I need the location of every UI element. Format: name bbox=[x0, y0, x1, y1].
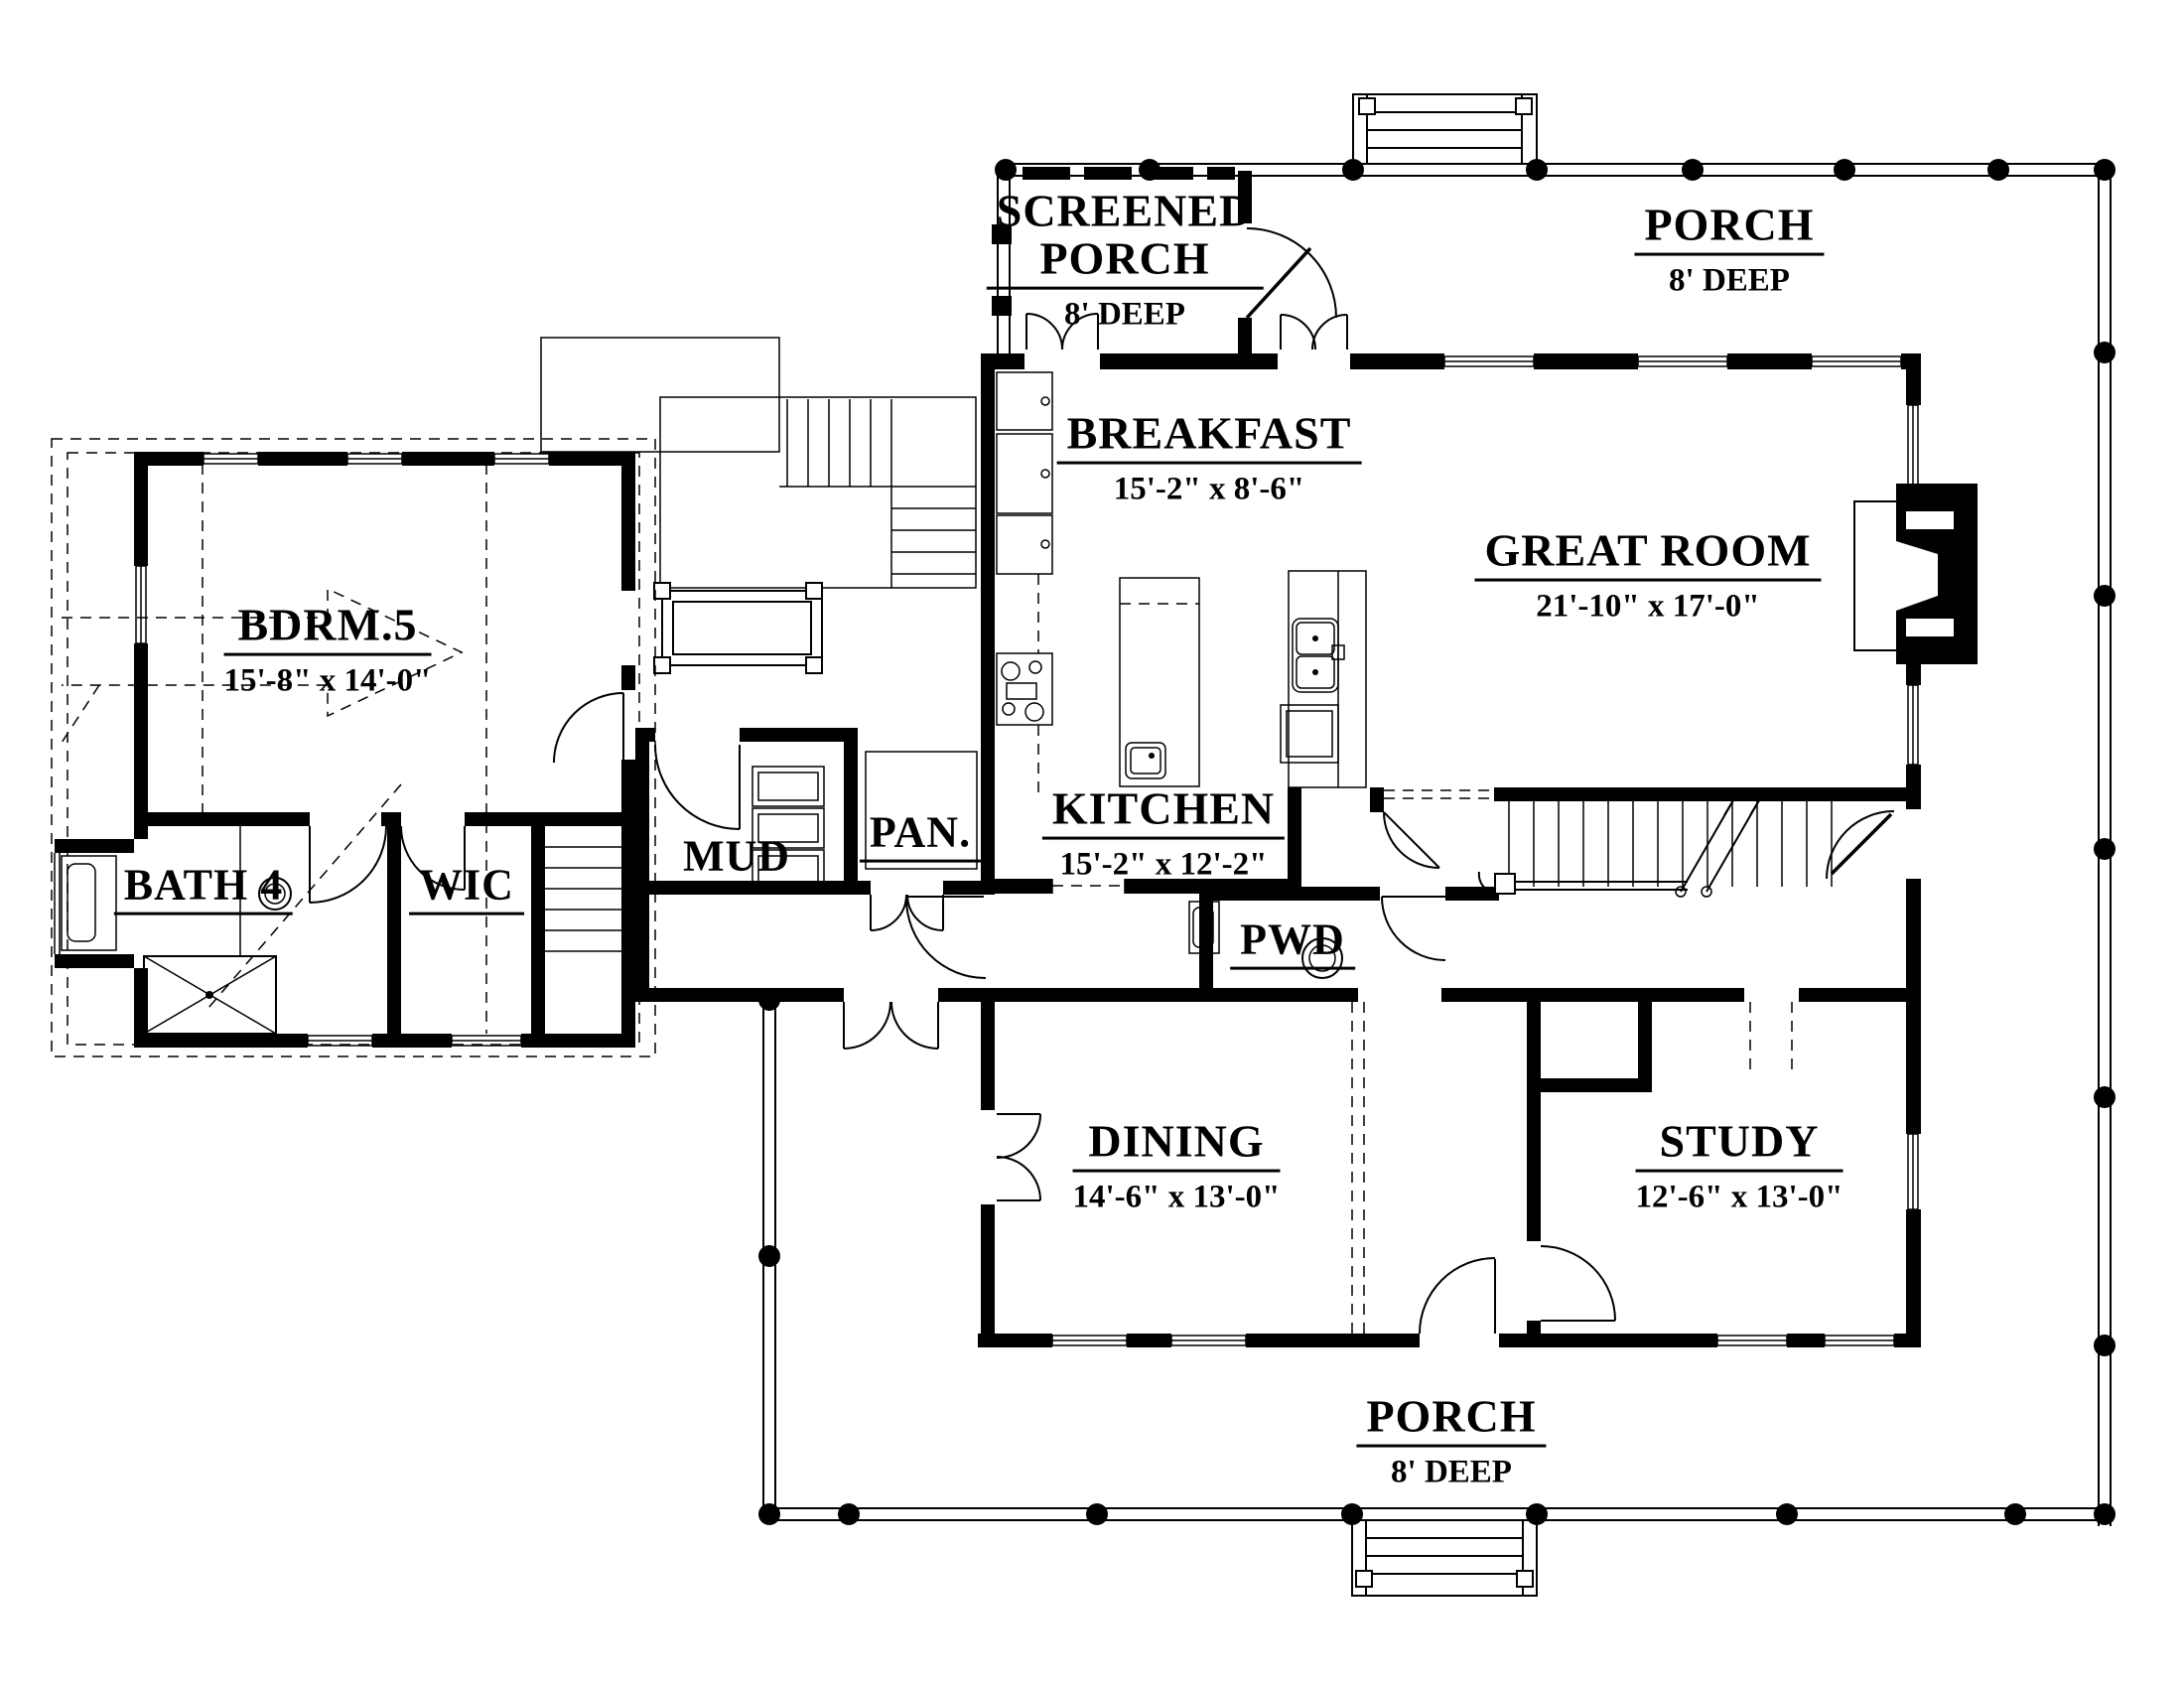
room-label-porch-top: PORCH 8' DEEP bbox=[1634, 202, 1824, 300]
room-label-screened-porch: SCREENED PORCH 8' DEEP bbox=[987, 188, 1264, 334]
porch-steps-top bbox=[1353, 94, 1537, 164]
room-name: BREAKFAST bbox=[1057, 410, 1362, 465]
room-name: PORCH bbox=[1634, 202, 1824, 256]
room-label-study: STUDY 12'-6" x 13'-0" bbox=[1636, 1118, 1843, 1216]
room-label-wic: WIC bbox=[409, 863, 524, 915]
room-name: WIC bbox=[409, 863, 524, 915]
porch-steps-bottom bbox=[1352, 1520, 1537, 1596]
room-label-great-room: GREAT ROOM 21'-10" x 17'-0" bbox=[1474, 527, 1821, 626]
room-name: BDRM.5 bbox=[224, 602, 432, 656]
room-label-pan: PAN. bbox=[860, 810, 981, 863]
floor-plan-page: SCREENED PORCH 8' DEEP PORCH 8' DEEP BRE… bbox=[0, 0, 2184, 1688]
room-name: PWD bbox=[1230, 917, 1355, 970]
room-name: DINING bbox=[1073, 1118, 1281, 1173]
room-dims: 8' DEEP bbox=[987, 289, 1264, 333]
wing-walls bbox=[55, 452, 635, 1048]
stairs-main bbox=[1384, 790, 1832, 1077]
room-label-kitchen: KITCHEN 15'-2" x 12'-2" bbox=[1042, 785, 1285, 884]
room-dims: 14'-6" x 13'-0" bbox=[1073, 1172, 1281, 1215]
room-label-dining: DINING 14'-6" x 13'-0" bbox=[1073, 1118, 1281, 1216]
fireplace-icon bbox=[1854, 484, 1978, 664]
room-dims: 15'-2" x 12'-2" bbox=[1042, 839, 1285, 883]
room-dims: 15'-8" x 14'-0" bbox=[224, 655, 432, 699]
room-label-bath4: BATH 4 bbox=[114, 863, 293, 915]
room-name: KITCHEN bbox=[1042, 785, 1285, 840]
room-name: STUDY bbox=[1636, 1118, 1843, 1173]
room-label-porch-bottom: PORCH 8' DEEP bbox=[1356, 1393, 1546, 1491]
room-dims: 21'-10" x 17'-0" bbox=[1474, 581, 1821, 625]
room-name: SCREENED PORCH bbox=[987, 188, 1264, 290]
room-name: BATH 4 bbox=[114, 863, 293, 915]
room-dims: 12'-6" x 13'-0" bbox=[1636, 1172, 1843, 1215]
stairs-back bbox=[541, 338, 976, 673]
room-label-pwd: PWD bbox=[1230, 917, 1355, 970]
room-name: MUD bbox=[673, 834, 800, 887]
room-label-mud: MUD bbox=[673, 834, 800, 887]
room-label-bdrm5: BDRM.5 15'-8" x 14'-0" bbox=[224, 602, 432, 700]
room-dims: 15'-2" x 8'-6" bbox=[1057, 464, 1362, 507]
room-label-breakfast: BREAKFAST 15'-2" x 8'-6" bbox=[1057, 410, 1362, 508]
room-dims: 8' DEEP bbox=[1634, 255, 1824, 299]
room-dims: 8' DEEP bbox=[1356, 1447, 1546, 1490]
room-name: PAN. bbox=[860, 810, 981, 863]
room-name: GREAT ROOM bbox=[1474, 527, 1821, 582]
stairs-wing bbox=[545, 847, 621, 951]
room-name: PORCH bbox=[1356, 1393, 1546, 1448]
